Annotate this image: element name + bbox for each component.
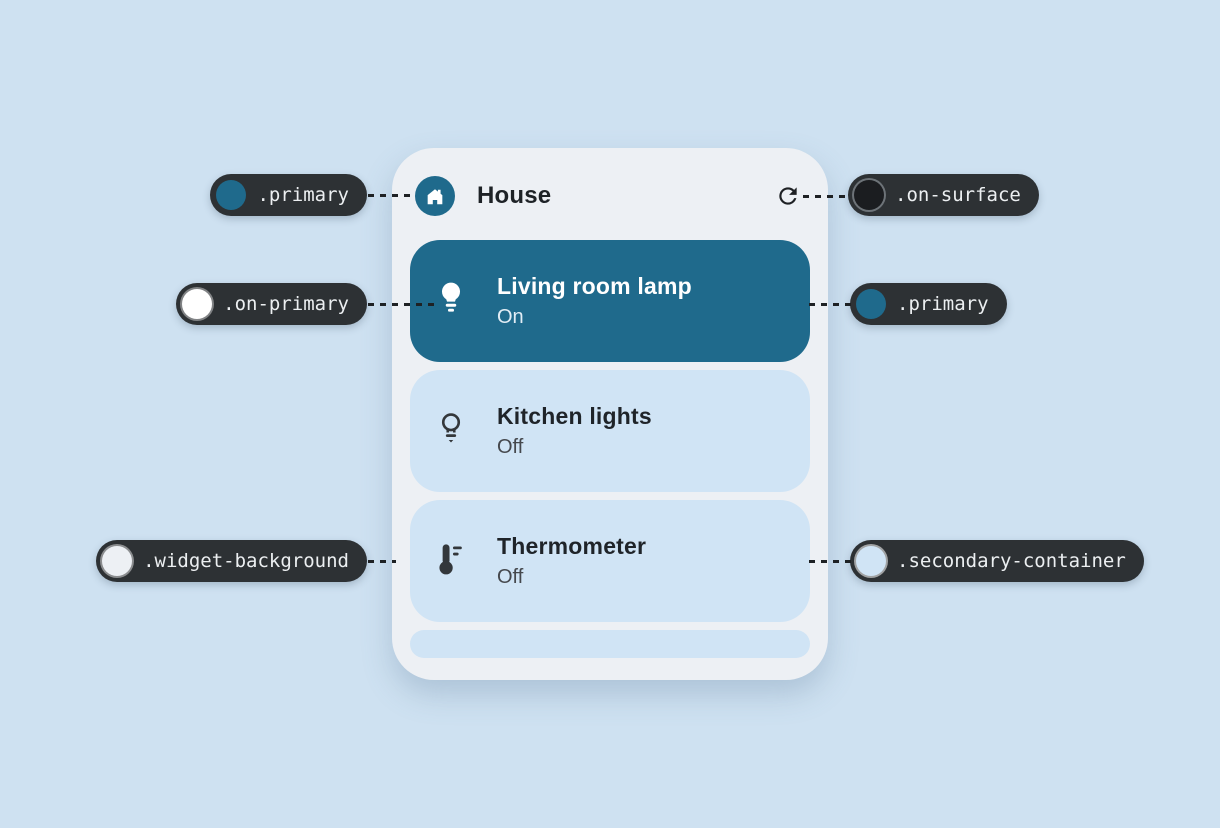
swatch-ring (854, 544, 888, 578)
lightbulb-filled-icon (434, 277, 468, 325)
device-card-living-room-lamp[interactable]: Living room lamp On (410, 240, 810, 362)
collapsed-device-pill[interactable] (410, 630, 810, 658)
device-status: Off (497, 436, 652, 459)
device-text: Kitchen lights Off (497, 403, 652, 459)
device-text: Thermometer Off (497, 533, 646, 589)
diagram-canvas: House (0, 0, 1220, 828)
token-label: .widget-background (143, 550, 349, 572)
device-status: On (497, 306, 692, 329)
app-badge[interactable] (415, 176, 455, 216)
token-label: .secondary-container (897, 550, 1126, 572)
token-pill-primary-top: .primary (210, 174, 367, 216)
token-pill-on-primary: .on-primary (176, 283, 367, 325)
connector-primary-right (809, 303, 851, 306)
refresh-button[interactable] (774, 182, 802, 210)
device-card-kitchen-lights[interactable]: Kitchen lights Off (410, 370, 810, 492)
device-name: Thermometer (497, 533, 646, 560)
device-name: Kitchen lights (497, 403, 652, 430)
lightbulb-outline-icon (434, 407, 468, 455)
color-swatch (854, 180, 884, 210)
color-swatch (856, 546, 886, 576)
widget-header: House (410, 176, 810, 216)
token-label: .on-surface (895, 184, 1021, 206)
token-pill-secondary-container: .secondary-container (850, 540, 1144, 582)
connector-widget-background (368, 560, 396, 563)
token-pill-on-surface: .on-surface (848, 174, 1039, 216)
device-status: Off (497, 566, 646, 589)
connector-on-primary (368, 303, 440, 306)
token-label: .on-primary (223, 293, 349, 315)
device-card-thermometer[interactable]: Thermometer Off (410, 500, 810, 622)
house-icon (424, 185, 446, 207)
token-label: .primary (897, 293, 989, 315)
connector-on-surface (803, 195, 849, 198)
swatch-ring (180, 287, 214, 321)
swatch-ring (100, 544, 134, 578)
token-label: .primary (257, 184, 349, 206)
color-swatch (856, 289, 886, 319)
device-text: Living room lamp On (497, 273, 692, 329)
swatch-ring (214, 178, 248, 212)
refresh-icon (775, 183, 801, 209)
connector-primary-top (368, 194, 414, 197)
home-widget: House (392, 148, 828, 680)
device-name: Living room lamp (497, 273, 692, 300)
widget-title: House (477, 182, 774, 210)
connector-secondary-container (809, 560, 851, 563)
thermometer-icon (434, 537, 468, 585)
color-swatch (182, 289, 212, 319)
swatch-ring (854, 287, 888, 321)
token-pill-widget-background: .widget-background (96, 540, 367, 582)
token-pill-primary-right: .primary (850, 283, 1007, 325)
device-list: Living room lamp On Kitchen lights (410, 240, 810, 658)
color-swatch (216, 180, 246, 210)
swatch-ring (852, 178, 886, 212)
color-swatch (102, 546, 132, 576)
